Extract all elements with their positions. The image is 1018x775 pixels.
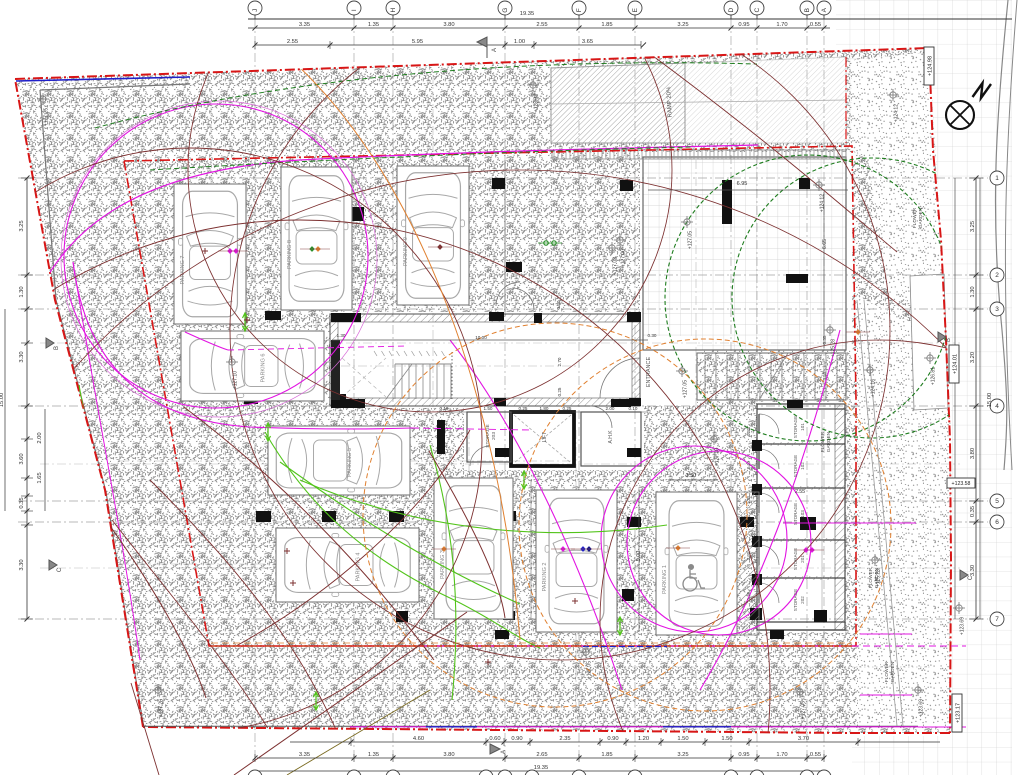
svg-text:+123.69: +123.69	[960, 617, 966, 635]
svg-text:3: 3	[995, 306, 999, 313]
svg-text:+125.28: +125.28	[831, 339, 837, 357]
svg-text:E: E	[632, 7, 639, 12]
svg-text:+127.25: +127.25	[44, 108, 50, 126]
svg-text:G: G	[502, 8, 509, 13]
svg-text:3.35: 3.35	[299, 752, 310, 758]
svg-text:3.25: 3.25	[677, 22, 688, 28]
svg-text:+127.05: +127.05	[688, 231, 694, 249]
svg-text:+124.01: +124.01	[953, 354, 959, 374]
svg-text:GARDEN: GARDEN	[890, 661, 896, 682]
svg-text:I: I	[351, 9, 358, 11]
svg-text:STORAGE: STORAGE	[793, 416, 798, 438]
svg-text:1.35: 1.35	[368, 22, 379, 28]
svg-text:2.55: 2.55	[795, 489, 805, 495]
svg-text:STORAGE: STORAGE	[793, 455, 798, 477]
svg-text:LIFT: LIFT	[542, 432, 548, 442]
svg-text:PARKING 7: PARKING 7	[180, 256, 186, 285]
svg-text:2.65: 2.65	[536, 752, 547, 758]
svg-text:4.60: 4.60	[413, 736, 424, 742]
svg-text:+123.58: +123.58	[952, 481, 971, 487]
svg-text:PARKING 2: PARKING 2	[542, 563, 548, 592]
svg-text:0.10: 0.10	[746, 460, 751, 469]
svg-text:3.50: 3.50	[686, 473, 697, 479]
svg-text:3.70: 3.70	[798, 736, 809, 742]
svg-text:C: C	[57, 567, 63, 572]
svg-text:STORAGE: STORAGE	[485, 424, 491, 447]
svg-text:15.00: 15.00	[987, 393, 993, 408]
svg-text:+127.00: +127.00	[621, 249, 627, 267]
svg-text:ENTRANCE: ENTRANCE	[646, 357, 652, 388]
svg-text:203: 203	[491, 432, 497, 440]
svg-text:PARKING 8: PARKING 8	[287, 240, 293, 269]
svg-text:1: 1	[995, 175, 999, 182]
svg-text:1.30: 1.30	[19, 286, 25, 297]
svg-text:0.25: 0.25	[519, 406, 528, 411]
svg-text:A.H.K: A.H.K	[608, 430, 614, 444]
svg-text:+125.28: +125.28	[876, 569, 882, 587]
svg-text:PARKING 5: PARKING 5	[347, 448, 353, 477]
svg-text:1.85: 1.85	[601, 752, 612, 758]
svg-text:15.00: 15.00	[0, 393, 5, 408]
svg-text:3.25: 3.25	[677, 752, 688, 758]
svg-text:2.55: 2.55	[536, 22, 547, 28]
svg-text:3.80: 3.80	[970, 448, 976, 459]
svg-text:C: C	[754, 8, 761, 13]
svg-text:+123.69: +123.69	[919, 699, 925, 717]
svg-text:+127.10: +127.10	[715, 448, 721, 466]
svg-text:STORAGE: STORAGE	[793, 548, 798, 570]
svg-text:C: C	[968, 575, 974, 580]
svg-text:+127.10: +127.10	[233, 371, 239, 389]
svg-text:B: B	[54, 346, 60, 350]
svg-text:3.80: 3.80	[443, 22, 454, 28]
svg-text:3.25: 3.25	[970, 221, 976, 232]
svg-text:1.70: 1.70	[776, 752, 787, 758]
svg-text:GARDEN: GARDEN	[918, 207, 924, 228]
svg-text:B: B	[804, 8, 811, 12]
svg-text:FLOWER: FLOWER	[820, 431, 826, 452]
svg-text:PARKING 6: PARKING 6	[261, 354, 267, 383]
svg-text:1.35: 1.35	[368, 752, 379, 758]
svg-text:0.25: 0.25	[563, 406, 572, 411]
svg-text:3.30: 3.30	[19, 351, 25, 362]
svg-text:FLOWER: FLOWER	[884, 661, 890, 682]
svg-text:201: 201	[800, 555, 805, 563]
svg-text:1.50: 1.50	[677, 736, 688, 742]
svg-text:STORAGE: STORAGE	[793, 589, 798, 611]
svg-text:A: A	[501, 750, 507, 754]
svg-text:102: 102	[800, 462, 805, 470]
svg-text:FLOWER: FLOWER	[868, 567, 874, 588]
svg-text:1.20: 1.20	[638, 736, 649, 742]
svg-text:1.30: 1.30	[970, 286, 976, 297]
svg-text:1.50: 1.50	[484, 406, 493, 411]
svg-text:1.85: 1.85	[601, 22, 612, 28]
svg-text:5.95: 5.95	[412, 39, 423, 45]
svg-text:0.10: 0.10	[440, 406, 449, 411]
svg-text:+127.25: +127.25	[159, 699, 165, 717]
svg-text:5: 5	[995, 498, 999, 505]
svg-text:3.30: 3.30	[970, 565, 976, 576]
svg-text:0.90: 0.90	[607, 736, 618, 742]
svg-text:19.35: 19.35	[520, 11, 535, 17]
svg-text:6.95: 6.95	[737, 181, 748, 187]
svg-text:0.35: 0.35	[970, 506, 976, 517]
svg-text:3.35: 3.35	[299, 22, 310, 28]
svg-text:1.30: 1.30	[746, 495, 751, 504]
svg-text:3.55: 3.55	[822, 371, 827, 380]
svg-text:A: A	[492, 48, 498, 52]
svg-text:0.60: 0.60	[489, 736, 500, 742]
svg-text:2.55: 2.55	[287, 39, 298, 45]
svg-text:J: J	[252, 9, 259, 12]
svg-text:3.80: 3.80	[443, 752, 454, 758]
svg-text:2.00: 2.00	[37, 432, 43, 443]
svg-text:FLOWER: FLOWER	[912, 207, 918, 228]
svg-text:STORAGE: STORAGE	[793, 503, 798, 525]
svg-text:+128.08: +128.08	[534, 94, 540, 112]
svg-text:1.00: 1.00	[514, 39, 525, 45]
svg-text:0.55: 0.55	[810, 22, 821, 28]
svg-text:+127.08: +127.08	[613, 257, 619, 275]
svg-text:+124.12: +124.12	[820, 194, 826, 212]
svg-text:3.20: 3.20	[970, 352, 976, 363]
svg-text:F: F	[576, 8, 583, 12]
svg-text:1.30: 1.30	[337, 333, 346, 338]
svg-text:B: B	[946, 338, 952, 342]
svg-text:1.20: 1.20	[746, 551, 751, 560]
svg-text:0.55: 0.55	[810, 752, 821, 758]
svg-text:2.70: 2.70	[557, 357, 562, 366]
svg-text:2.35: 2.35	[559, 736, 570, 742]
svg-text:0.35: 0.35	[822, 335, 827, 344]
svg-text:0.90: 0.90	[511, 736, 522, 742]
svg-text:GARDEN: GARDEN	[826, 431, 832, 452]
svg-text:0.30: 0.30	[556, 300, 561, 309]
svg-text:+124.16: +124.16	[871, 379, 877, 397]
svg-text:0.10: 0.10	[629, 406, 638, 411]
svg-text:3.60: 3.60	[19, 453, 25, 464]
svg-text:0.30: 0.30	[648, 333, 657, 338]
svg-text:1.30: 1.30	[746, 591, 751, 600]
svg-text:+127.05: +127.05	[683, 380, 689, 398]
svg-text:101: 101	[800, 423, 805, 431]
svg-text:7: 7	[995, 616, 999, 623]
svg-text:D: D	[728, 8, 735, 13]
svg-text:+127.05: +127.05	[587, 661, 593, 679]
svg-text:1.65: 1.65	[37, 472, 43, 483]
svg-text:2: 2	[995, 272, 999, 279]
svg-text:+123.17: +123.17	[956, 703, 962, 723]
svg-text:19.35: 19.35	[534, 765, 549, 771]
svg-text:1.80: 1.80	[540, 406, 549, 411]
svg-text:+124.98: +124.98	[928, 56, 934, 76]
svg-text:4: 4	[995, 403, 999, 410]
svg-text:3.65: 3.65	[582, 39, 593, 45]
svg-text:PARKING 1: PARKING 1	[662, 565, 668, 594]
svg-text:0.95: 0.95	[738, 752, 749, 758]
svg-text:202: 202	[800, 596, 805, 604]
svg-text:H: H	[390, 8, 397, 13]
svg-text:1.70: 1.70	[776, 22, 787, 28]
svg-text:1.30: 1.30	[746, 427, 751, 436]
svg-text:6: 6	[995, 519, 999, 526]
svg-text:2.00: 2.00	[606, 406, 615, 411]
svg-text:3.25: 3.25	[19, 220, 25, 231]
svg-text:+126.81: +126.81	[931, 367, 937, 385]
svg-text:103: 103	[800, 510, 805, 518]
svg-text:3.30: 3.30	[19, 559, 25, 570]
svg-text:6.65: 6.65	[822, 239, 828, 249]
svg-text:A: A	[821, 7, 828, 12]
svg-text:1.50: 1.50	[721, 736, 732, 742]
svg-text:0.25: 0.25	[557, 387, 562, 396]
svg-text:10.00: 10.00	[475, 335, 487, 340]
svg-text:0.35: 0.35	[19, 497, 25, 508]
svg-text:+127.05: +127.05	[801, 701, 807, 719]
svg-text:+124.12: +124.12	[894, 104, 900, 122]
svg-text:0.95: 0.95	[738, 22, 749, 28]
